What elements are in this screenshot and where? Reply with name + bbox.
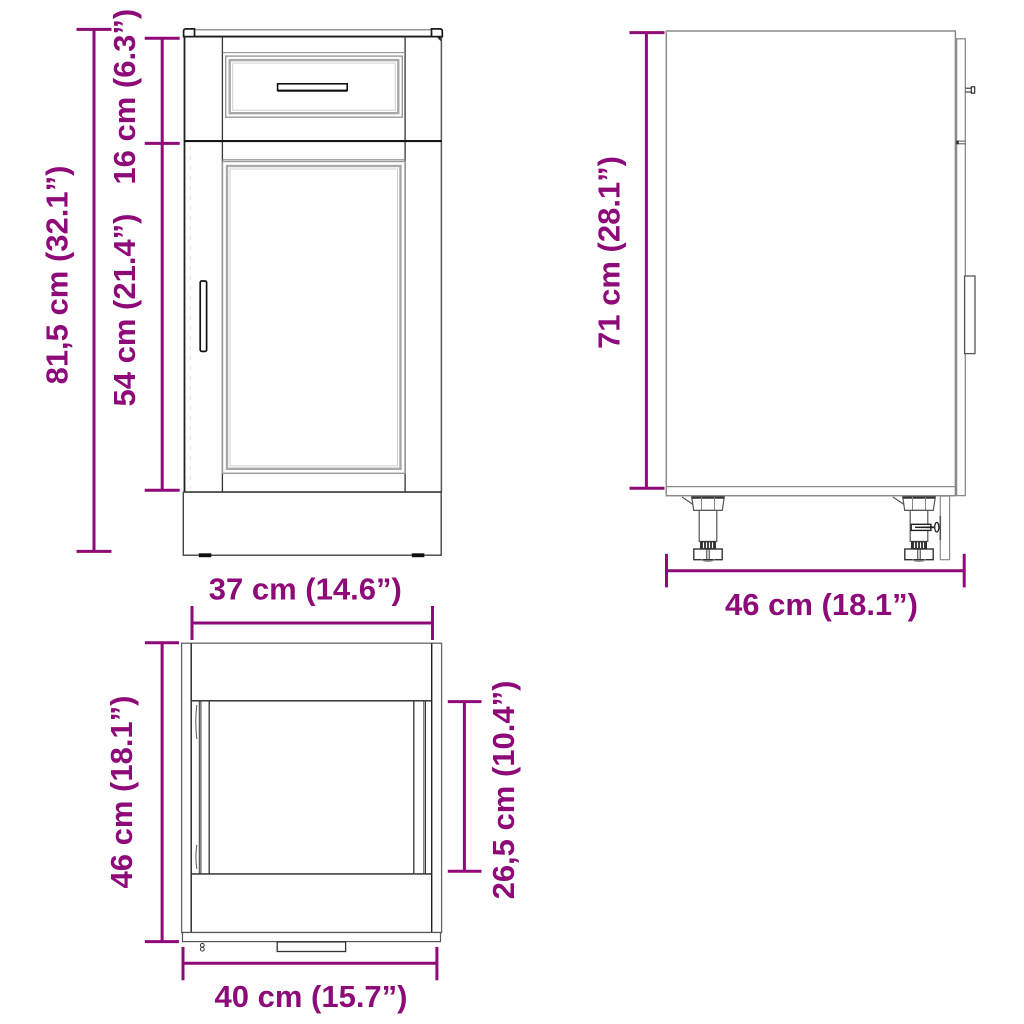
svg-text:46 cm (18.1”): 46 cm (18.1”) xyxy=(104,696,139,889)
svg-text:16 cm (6.3”): 16 cm (6.3”) xyxy=(107,9,142,185)
svg-text:46 cm (18.1”): 46 cm (18.1”) xyxy=(725,587,918,622)
svg-text:37 cm (14.6”): 37 cm (14.6”) xyxy=(209,572,402,607)
svg-text:71 cm (28.1”): 71 cm (28.1”) xyxy=(592,156,627,349)
svg-text:40 cm (15.7”): 40 cm (15.7”) xyxy=(215,979,408,1014)
svg-text:26,5 cm (10.4”): 26,5 cm (10.4”) xyxy=(486,681,521,900)
svg-text:81,5 cm (32.1”): 81,5 cm (32.1”) xyxy=(40,166,75,385)
svg-text:54 cm (21.4”): 54 cm (21.4”) xyxy=(107,214,142,407)
